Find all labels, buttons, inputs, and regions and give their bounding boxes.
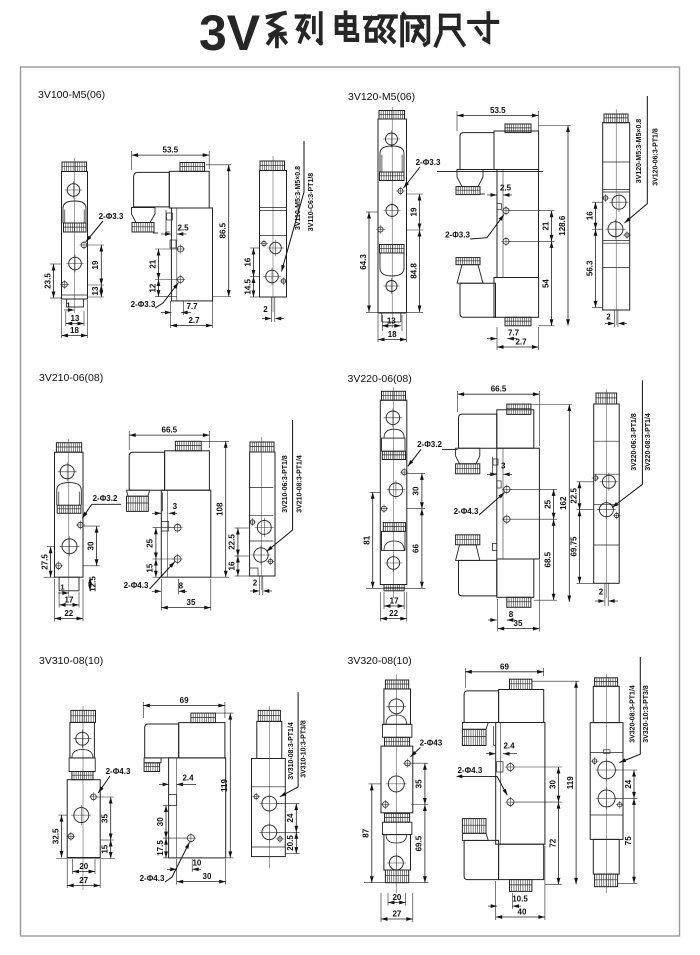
svg-text:64.3: 64.3 <box>359 254 368 270</box>
svg-text:162: 162 <box>559 496 568 510</box>
svg-text:68.5: 68.5 <box>543 551 552 567</box>
svg-text:19: 19 <box>409 207 418 216</box>
svg-text:21: 21 <box>541 221 550 230</box>
svg-text:22.5: 22.5 <box>228 534 237 550</box>
svg-text:32.5: 32.5 <box>51 828 60 844</box>
svg-text:3V100-M5(06): 3V100-M5(06) <box>38 89 105 101</box>
svg-text:8: 8 <box>179 582 184 591</box>
svg-text:3V: 3V <box>199 5 261 61</box>
svg-text:3V210-06(08): 3V210-06(08) <box>39 372 103 384</box>
svg-text:1: 1 <box>66 301 70 310</box>
svg-text:2-Φ43: 2-Φ43 <box>420 739 443 748</box>
svg-text:27.5: 27.5 <box>40 554 49 570</box>
svg-text:30: 30 <box>412 486 421 495</box>
svg-text:10: 10 <box>192 859 201 868</box>
svg-text:2-Φ4.3: 2-Φ4.3 <box>457 766 482 775</box>
svg-text:30: 30 <box>86 541 95 550</box>
svg-text:3V220-06:3-PT1/8: 3V220-06:3-PT1/8 <box>631 413 638 471</box>
svg-text:25: 25 <box>543 499 552 508</box>
svg-text:3: 3 <box>501 461 506 470</box>
svg-text:3V110-C6:3-PT1/8: 3V110-C6:3-PT1/8 <box>308 173 315 231</box>
svg-text:3V310-08:3-PT1/4: 3V310-08:3-PT1/4 <box>288 722 295 780</box>
svg-text:2-Φ4.3: 2-Φ4.3 <box>140 874 165 883</box>
svg-text:2-Φ3.3: 2-Φ3.3 <box>416 158 441 167</box>
svg-text:14.5: 14.5 <box>243 278 252 294</box>
svg-text:2-Φ4.3: 2-Φ4.3 <box>454 507 479 516</box>
svg-text:20.5: 20.5 <box>286 835 295 851</box>
svg-text:2.4: 2.4 <box>503 742 515 751</box>
svg-text:3V120-M5:3-M5×0.8: 3V120-M5:3-M5×0.8 <box>636 119 643 184</box>
svg-text:27: 27 <box>392 910 401 919</box>
svg-text:86.5: 86.5 <box>219 222 228 238</box>
svg-text:66.5: 66.5 <box>162 426 178 435</box>
svg-text:69.5: 69.5 <box>415 835 424 851</box>
svg-text:30: 30 <box>203 872 212 881</box>
svg-text:30: 30 <box>156 817 165 826</box>
svg-text:119: 119 <box>220 778 229 791</box>
svg-text:22.5: 22.5 <box>569 487 578 503</box>
svg-text:13: 13 <box>70 314 79 323</box>
svg-text:24: 24 <box>624 779 633 788</box>
svg-text:66: 66 <box>412 544 421 553</box>
svg-text:108: 108 <box>216 502 225 516</box>
svg-text:12.5: 12.5 <box>89 576 98 592</box>
svg-text:2.5: 2.5 <box>500 184 512 193</box>
svg-text:54: 54 <box>541 279 550 288</box>
svg-text:119: 119 <box>566 776 575 789</box>
svg-text:20: 20 <box>79 862 88 871</box>
svg-text:2.7: 2.7 <box>188 316 200 325</box>
svg-text:17: 17 <box>390 597 399 606</box>
svg-text:3V310-08(10): 3V310-08(10) <box>39 655 103 667</box>
svg-text:19: 19 <box>91 260 100 269</box>
svg-text:18: 18 <box>388 330 397 339</box>
svg-text:87: 87 <box>362 828 371 837</box>
svg-text:22: 22 <box>389 609 398 618</box>
svg-text:16: 16 <box>243 257 252 266</box>
svg-text:2-Φ3.3: 2-Φ3.3 <box>445 231 470 240</box>
svg-text:3: 3 <box>173 502 178 511</box>
svg-text:81: 81 <box>363 535 372 544</box>
svg-text:16: 16 <box>585 211 594 220</box>
svg-text:3V320-08:3-PT1/4: 3V320-08:3-PT1/4 <box>630 685 637 743</box>
svg-text:27: 27 <box>79 876 88 885</box>
svg-text:128.6: 128.6 <box>558 215 567 236</box>
svg-text:16: 16 <box>228 561 237 570</box>
svg-text:40: 40 <box>518 908 527 917</box>
svg-text:17: 17 <box>65 595 74 604</box>
svg-text:24: 24 <box>286 813 295 822</box>
svg-text:15: 15 <box>101 844 110 853</box>
svg-text:35: 35 <box>101 814 110 823</box>
svg-text:30: 30 <box>548 780 557 789</box>
svg-text:25: 25 <box>146 538 155 547</box>
svg-text:7.7: 7.7 <box>186 302 198 311</box>
svg-text:18: 18 <box>70 326 79 335</box>
svg-text:12: 12 <box>148 283 157 292</box>
svg-text:2-Φ4.3: 2-Φ4.3 <box>106 767 131 776</box>
svg-text:2-Φ3.3: 2-Φ3.3 <box>99 212 124 221</box>
svg-text:72: 72 <box>548 838 557 847</box>
svg-text:3V120-M5(06): 3V120-M5(06) <box>348 91 415 103</box>
svg-text:56.3: 56.3 <box>585 260 594 276</box>
svg-text:3V210-06:3-PT1/8: 3V210-06:3-PT1/8 <box>282 455 289 513</box>
svg-text:15: 15 <box>146 563 155 572</box>
svg-text:2: 2 <box>253 579 258 588</box>
svg-text:2: 2 <box>263 305 268 314</box>
svg-text:2.5: 2.5 <box>177 224 189 233</box>
svg-text:13: 13 <box>387 316 396 325</box>
svg-text:8: 8 <box>509 610 514 619</box>
svg-text:3V120-06:3-PT1/8: 3V120-06:3-PT1/8 <box>653 128 660 186</box>
svg-text:69.75: 69.75 <box>569 536 578 557</box>
svg-text:2-Φ3.2: 2-Φ3.2 <box>417 440 442 449</box>
svg-text:2.7: 2.7 <box>515 338 527 347</box>
svg-text:53.5: 53.5 <box>490 106 506 115</box>
svg-text:35: 35 <box>514 619 523 628</box>
svg-text:84.8: 84.8 <box>409 263 418 279</box>
svg-text:53.5: 53.5 <box>163 146 179 155</box>
svg-text:2-Φ4.3: 2-Φ4.3 <box>124 581 149 590</box>
svg-text:17.5: 17.5 <box>156 840 165 856</box>
svg-text:22: 22 <box>64 609 73 618</box>
svg-text:3V320-10:3-PT3/8: 3V320-10:3-PT3/8 <box>643 685 650 743</box>
svg-text:3V210-08:3-PT1/4: 3V210-08:3-PT1/4 <box>297 455 304 513</box>
svg-text:2-Φ3.2: 2-Φ3.2 <box>93 494 118 503</box>
svg-text:66.5: 66.5 <box>491 385 507 394</box>
svg-text:10.5: 10.5 <box>512 895 528 904</box>
svg-text:2: 2 <box>606 313 611 322</box>
svg-text:2: 2 <box>599 588 604 597</box>
svg-text:3V220-08:3-PT1/4: 3V220-08:3-PT1/4 <box>645 413 652 471</box>
svg-text:2.4: 2.4 <box>182 774 194 783</box>
svg-text:21: 21 <box>148 259 157 268</box>
svg-text:75: 75 <box>624 836 633 845</box>
svg-text:35: 35 <box>187 598 196 607</box>
svg-text:23.5: 23.5 <box>43 273 52 289</box>
svg-text:3V310-10:3-PT3/8: 3V310-10:3-PT3/8 <box>301 720 308 778</box>
svg-text:69: 69 <box>500 662 509 671</box>
svg-text:69: 69 <box>180 696 189 705</box>
svg-text:20: 20 <box>392 893 401 902</box>
svg-text:2-Φ3.3: 2-Φ3.3 <box>131 300 156 309</box>
svg-text:13: 13 <box>91 286 100 295</box>
svg-text:3V220-06(08): 3V220-06(08) <box>348 373 412 385</box>
svg-text:35: 35 <box>415 779 424 788</box>
svg-text:7.7: 7.7 <box>508 329 520 338</box>
svg-text:1: 1 <box>60 583 64 592</box>
svg-text:3V320-08(10): 3V320-08(10) <box>348 655 412 667</box>
